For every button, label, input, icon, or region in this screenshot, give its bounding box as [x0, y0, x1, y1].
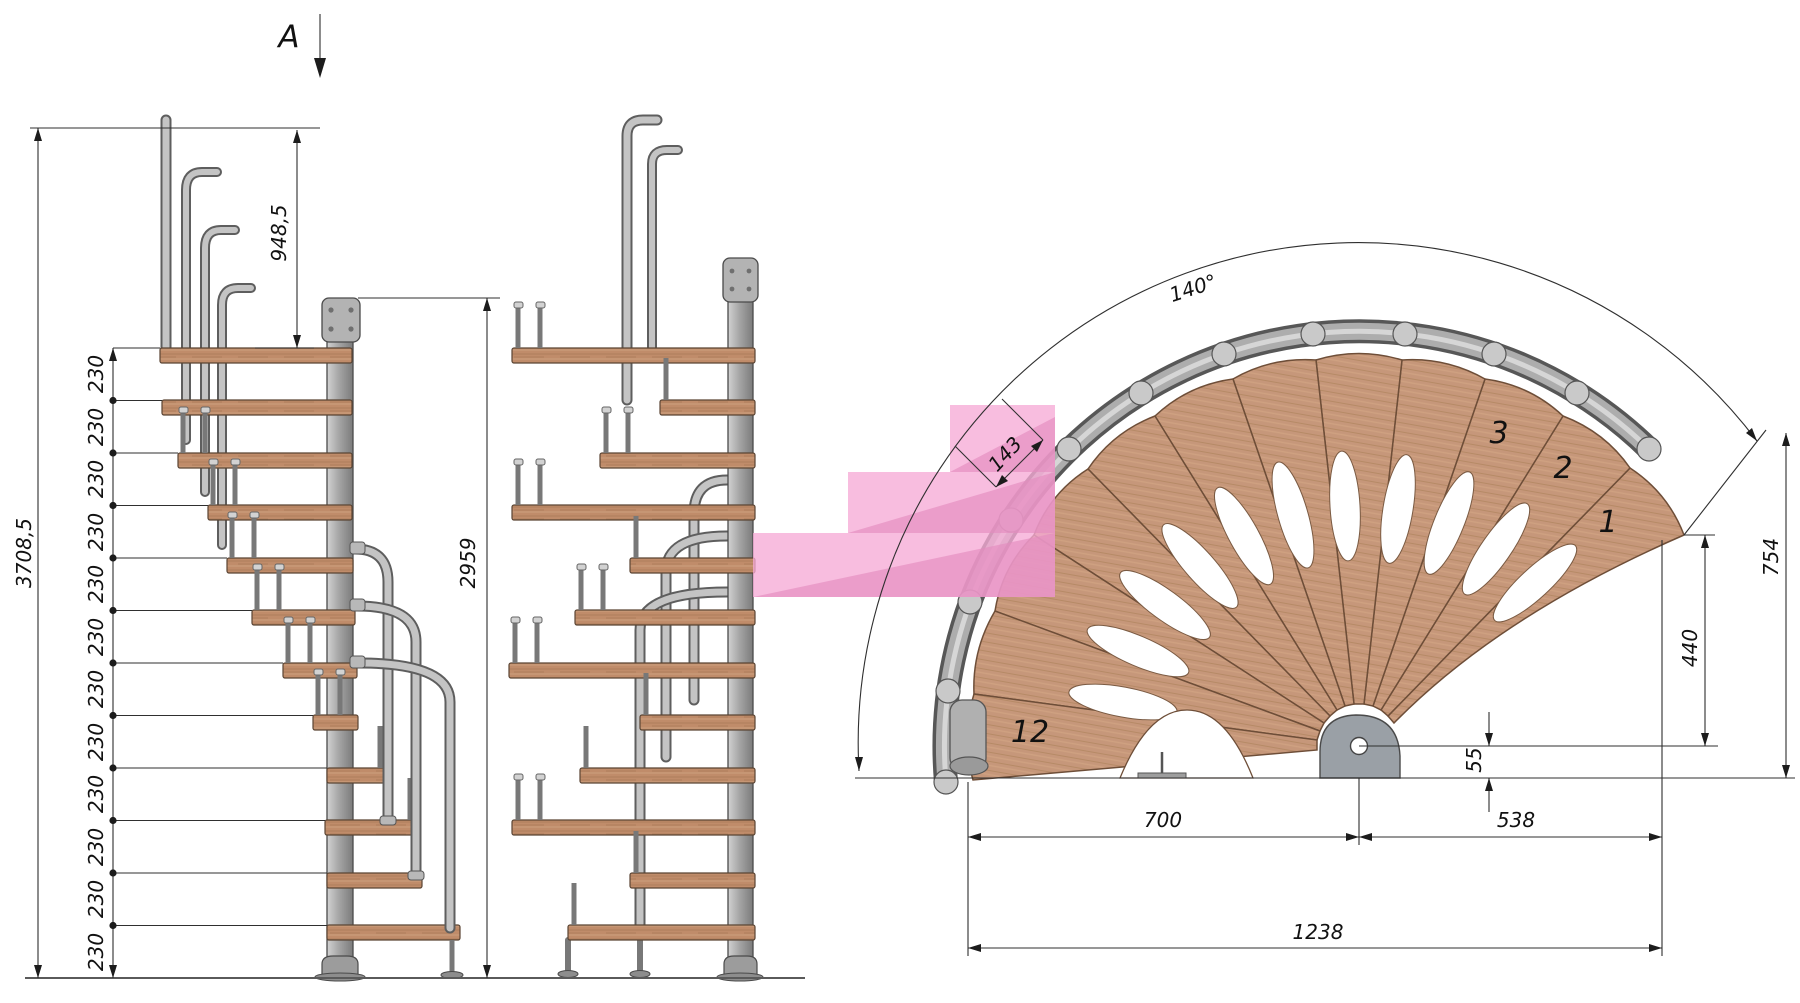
dim-riser: 230 — [86, 460, 106, 498]
dim-overall-height: 3708,5 — [14, 518, 34, 588]
dim-riser: 230 — [86, 513, 106, 551]
tread-number-3: 3 — [1489, 419, 1508, 449]
handrail-tubes-right — [355, 549, 450, 928]
dim-outer-radius: 754 — [1761, 538, 1781, 576]
dim-width-left: 700 — [1144, 810, 1182, 830]
dim-riser: 230 — [86, 408, 106, 446]
dim-riser: 230 — [86, 723, 106, 761]
treads-front — [509, 348, 755, 940]
drawing-canvas — [0, 0, 1800, 1003]
staircase-technical-drawing: A 3708,5 948,5 230 230 230 230 230 230 2… — [0, 0, 1800, 1003]
wall-bracket — [322, 298, 360, 342]
dim-pole-height: 2959 — [458, 538, 478, 589]
side-elevation-view — [160, 120, 463, 981]
dim-center-offset: 55 — [1464, 747, 1484, 772]
dim-riser: 230 — [86, 565, 106, 603]
dim-riser: 230 — [86, 670, 106, 708]
dim-riser: 230 — [86, 618, 106, 656]
dim-riser: 230 — [86, 880, 106, 918]
dim-inner-radius: 440 — [1680, 629, 1700, 667]
dim-riser: 230 — [86, 355, 106, 393]
dim-riser: 230 — [86, 933, 106, 971]
tread-number-2: 2 — [1553, 454, 1572, 484]
dim-width-total: 1238 — [1293, 922, 1344, 942]
tread-number-12: 12 — [1011, 718, 1049, 748]
dim-riser: 230 — [86, 828, 106, 866]
dim-top-height: 948,5 — [269, 204, 289, 261]
dim-riser: 230 — [86, 775, 106, 813]
handrail-canes-front — [568, 120, 727, 972]
section-label: A — [278, 23, 299, 54]
dim-width-right: 538 — [1497, 810, 1535, 830]
handrail-tubes-left — [166, 120, 251, 545]
front-elevation-view — [509, 120, 763, 981]
plan-treads — [967, 354, 1684, 781]
plan-end-post — [950, 700, 988, 775]
tread-number-1: 1 — [1598, 508, 1617, 538]
